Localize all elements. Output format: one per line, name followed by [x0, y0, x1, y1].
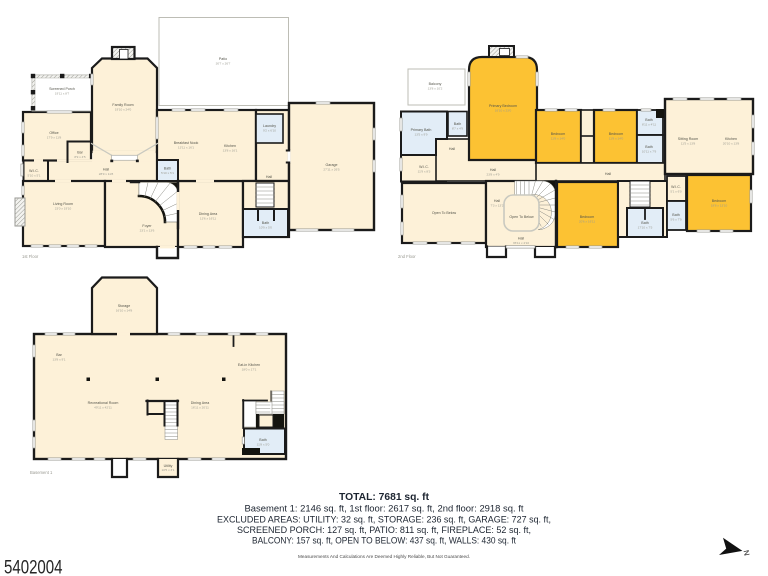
- svg-text:SCREENED PORCH: 127 sq. ft, PA: SCREENED PORCH: 127 sq. ft, PATIO: 811 s…: [237, 525, 531, 535]
- svg-text:17'9 x 11'8: 17'9 x 11'8: [47, 136, 62, 140]
- svg-text:49'11 x 42'11: 49'11 x 42'11: [94, 406, 112, 410]
- svg-text:Bath: Bath: [262, 221, 269, 225]
- svg-text:10'9 x 5'0: 10'9 x 5'0: [259, 226, 272, 230]
- svg-text:17'10 x 7'5: 17'10 x 7'5: [638, 226, 653, 230]
- svg-text:5'10 x 5'1: 5'10 x 5'1: [161, 171, 174, 175]
- svg-text:Hall: Hall: [605, 172, 611, 176]
- svg-text:Sitting Room: Sitting Room: [678, 137, 699, 141]
- svg-text:Hall: Hall: [494, 199, 500, 203]
- svg-text:Family Room: Family Room: [112, 103, 133, 107]
- svg-text:Office: Office: [49, 131, 58, 135]
- svg-text:N: N: [741, 549, 751, 556]
- svg-text:13'8 x 10'2: 13'8 x 10'2: [428, 87, 443, 91]
- svg-text:W.I.C.: W.I.C.: [29, 169, 39, 173]
- svg-text:Laundry: Laundry: [263, 124, 276, 128]
- svg-text:9'2 x 6'10: 9'2 x 6'10: [263, 129, 276, 133]
- svg-text:20'10 x 13'8: 20'10 x 13'8: [723, 142, 740, 146]
- svg-text:Patio: Patio: [219, 57, 227, 61]
- svg-text:TOTAL: 7681 sq. ft: TOTAL: 7681 sq. ft: [339, 492, 430, 503]
- svg-text:5'10 x 5'1: 5'10 x 5'1: [27, 174, 40, 178]
- svg-text:28'9 x 11'8: 28'9 x 11'8: [99, 172, 114, 176]
- svg-text:Dining Area: Dining Area: [191, 401, 210, 405]
- svg-text:Bath: Bath: [259, 438, 266, 442]
- svg-text:Garage: Garage: [326, 163, 338, 167]
- svg-text:11'5 x 13'8: 11'5 x 13'8: [681, 142, 696, 146]
- svg-text:Bedroom: Bedroom: [712, 199, 727, 203]
- svg-text:Screened Porch: Screened Porch: [49, 87, 75, 91]
- svg-text:Hall: Hall: [449, 147, 455, 151]
- svg-text:13'8 x 9'1: 13'8 x 9'1: [52, 358, 65, 362]
- svg-text:27'11 x 26'5: 27'11 x 26'5: [323, 168, 340, 172]
- svg-text:35'11 x 4'10: 35'11 x 4'10: [513, 241, 530, 245]
- svg-text:7'3 x 13'2: 7'3 x 13'2: [490, 204, 503, 208]
- svg-text:W.I.C.: W.I.C.: [419, 165, 429, 169]
- svg-text:Balcony: Balcony: [429, 82, 442, 86]
- svg-text:18'0 x 17'1: 18'0 x 17'1: [242, 368, 257, 372]
- svg-text:5'6 x 7'9: 5'6 x 7'9: [670, 218, 682, 222]
- svg-text:Bath: Bath: [454, 122, 461, 126]
- svg-text:W.I.C.: W.I.C.: [671, 185, 681, 189]
- svg-text:Basement 1: 2146 sq. ft, 1st f: Basement 1: 2146 sq. ft, 1st floor: 2617…: [245, 504, 525, 514]
- svg-text:Hall: Hall: [266, 175, 272, 179]
- svg-text:Eat-in Kitchen: Eat-in Kitchen: [238, 363, 260, 367]
- svg-text:BALCONY: 157 sq. ft, OPEN TO B: BALCONY: 157 sq. ft, OPEN TO BELOW: 437 …: [252, 535, 517, 545]
- svg-text:Primary Bath: Primary Bath: [411, 128, 432, 132]
- svg-text:Living Room: Living Room: [53, 202, 73, 206]
- svg-text:Kitchen: Kitchen: [725, 137, 737, 141]
- svg-text:8'9 x 4'5: 8'9 x 4'5: [74, 155, 86, 159]
- svg-text:11'8 x 5'0: 11'8 x 5'0: [257, 443, 270, 447]
- svg-text:11'8 x 14'0: 11'8 x 14'0: [609, 137, 624, 141]
- svg-text:Bedroom: Bedroom: [551, 132, 566, 136]
- svg-text:2nd Floor: 2nd Floor: [398, 254, 416, 259]
- svg-text:19'10 x 24'0: 19'10 x 24'0: [115, 108, 132, 112]
- svg-text:Bath: Bath: [641, 221, 648, 225]
- svg-text:11'9 x 8'3: 11'9 x 8'3: [418, 170, 431, 174]
- svg-text:16'10 x 23'0: 16'10 x 23'0: [495, 109, 512, 113]
- svg-text:Bath: Bath: [672, 213, 679, 217]
- svg-text:Recreational Room: Recreational Room: [88, 401, 119, 405]
- svg-text:Hall: Hall: [518, 237, 524, 241]
- svg-text:Kitchen: Kitchen: [224, 144, 236, 148]
- svg-text:5402004: 5402004: [4, 557, 63, 576]
- svg-text:16'11 x 20'11: 16'11 x 20'11: [191, 406, 209, 410]
- svg-text:13'5 x 9'9: 13'5 x 9'9: [414, 133, 427, 137]
- svg-text:EXCLUDED AREAS: UTILITY: 32 sq: EXCLUDED AREAS: UTILITY: 32 sq. ft, STOR…: [217, 515, 551, 525]
- svg-text:Bar: Bar: [77, 151, 83, 155]
- svg-text:23'0 x 19'10: 23'0 x 19'10: [55, 207, 72, 211]
- svg-text:20'6 x 16'11: 20'6 x 16'11: [579, 220, 596, 224]
- svg-text:18'8 x 13'10: 18'8 x 13'10: [711, 204, 728, 208]
- svg-text:10'5 x 3'1: 10'5 x 3'1: [161, 468, 174, 472]
- svg-text:Dining Area: Dining Area: [199, 212, 218, 216]
- svg-text:5'1 x 6'0: 5'1 x 6'0: [670, 190, 682, 194]
- svg-text:Bedroom: Bedroom: [580, 215, 595, 219]
- svg-text:23'1 x 13'6: 23'1 x 13'6: [140, 229, 155, 233]
- svg-text:Bath: Bath: [164, 167, 171, 171]
- svg-text:Primary Bedroom: Primary Bedroom: [489, 104, 517, 108]
- svg-text:19'11 x 8'7: 19'11 x 8'7: [55, 92, 70, 96]
- svg-text:10'11 x 7'9: 10'11 x 7'9: [642, 150, 657, 154]
- svg-text:Hall: Hall: [103, 168, 109, 172]
- svg-text:13'8 x 16'1: 13'8 x 16'1: [223, 149, 238, 153]
- svg-text:11'8 x 14'0: 11'8 x 14'0: [551, 137, 566, 141]
- svg-text:13'11 x 16'1: 13'11 x 16'1: [178, 146, 195, 150]
- svg-text:Bar: Bar: [56, 353, 62, 357]
- svg-text:Measurements And Calculations: Measurements And Calculations Are Deemed…: [298, 554, 470, 559]
- svg-text:1st Floor: 1st Floor: [22, 254, 39, 259]
- svg-text:Open To Below: Open To Below: [432, 211, 457, 215]
- svg-text:8'7 x 4'9: 8'7 x 4'9: [452, 127, 464, 131]
- svg-text:23'8 x 4'9: 23'8 x 4'9: [486, 173, 499, 177]
- svg-text:Bath: Bath: [645, 118, 652, 122]
- svg-text:8'11 x 4'11: 8'11 x 4'11: [642, 123, 657, 127]
- svg-text:30'7 x 26'7: 30'7 x 26'7: [216, 62, 231, 66]
- svg-text:13'6 x 16'11: 13'6 x 16'11: [200, 217, 217, 221]
- svg-text:Bath: Bath: [645, 145, 652, 149]
- svg-text:Foyer: Foyer: [142, 224, 152, 228]
- svg-text:16'10 x 14'8: 16'10 x 14'8: [116, 309, 133, 313]
- svg-text:Hall: Hall: [490, 168, 496, 172]
- svg-text:Storage: Storage: [118, 304, 131, 308]
- svg-text:Basement 1: Basement 1: [30, 470, 53, 475]
- svg-text:Breakfast Nook: Breakfast Nook: [174, 141, 199, 145]
- svg-text:Bedroom: Bedroom: [609, 132, 624, 136]
- svg-text:Open To Below: Open To Below: [509, 215, 534, 219]
